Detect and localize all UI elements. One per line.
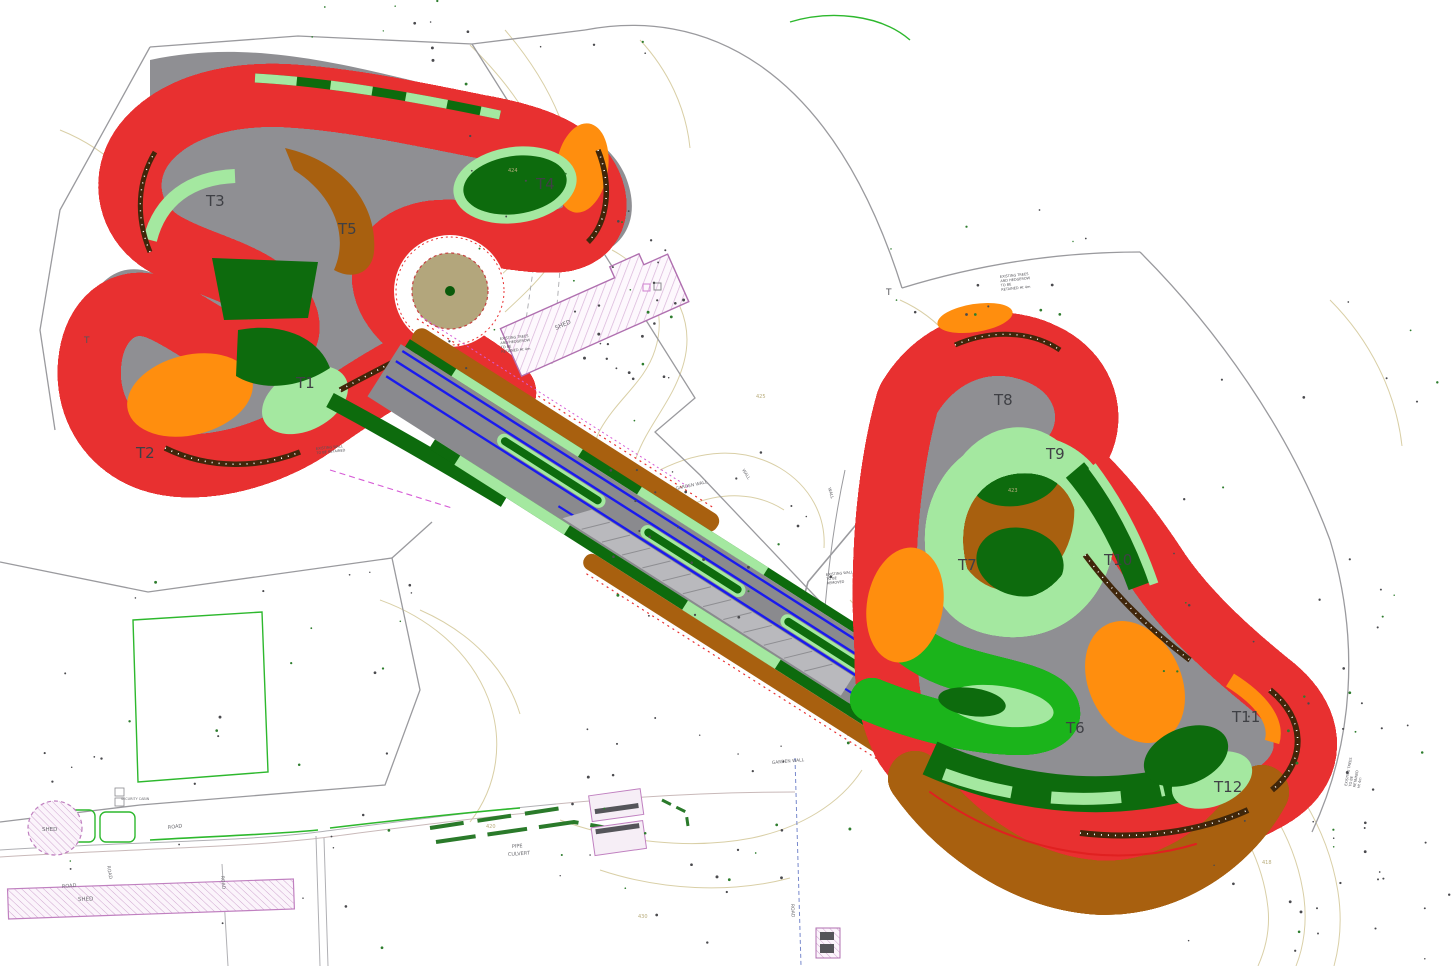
- turn-label-T8: T8: [993, 391, 1013, 409]
- survey-note-5: REMOVED: [827, 580, 845, 586]
- right-circuit-cluster: [858, 298, 1306, 888]
- wall-label-2: WALL: [827, 487, 835, 500]
- contour-elevation-label: 420: [486, 824, 496, 830]
- security-cabin: [115, 788, 124, 796]
- contour-elevation-label: 425: [756, 394, 766, 400]
- turn-label-T9: T9: [1045, 445, 1065, 463]
- long-shed: [8, 879, 295, 919]
- pipe-culvert-label-2: CULVERT: [508, 850, 531, 858]
- road-lines: [0, 792, 795, 966]
- track-plan-drawing: T1T2T3T4T5T6T7T8T9T10T11T12TTSHEDSHEDSHE…: [0, 0, 1452, 966]
- turn-label-T12: T12: [1213, 778, 1242, 796]
- turn-label-T10: T10: [1103, 551, 1132, 569]
- turn-label-T2: T2: [135, 444, 155, 462]
- road-label-3: ROAD: [105, 865, 113, 880]
- survey-note-4: Ht 4m: [1357, 777, 1363, 789]
- road-label-5: ROAD: [789, 904, 796, 918]
- turn-label-T4: T4: [535, 175, 555, 193]
- garden-wall-label-1: GARDEN WALL: [675, 479, 708, 492]
- turn-label-T7: T7: [957, 556, 977, 574]
- small-structure: [816, 928, 840, 958]
- road-label-1: ROAD: [62, 883, 77, 890]
- pipe-culvert-label: PIPE: [512, 843, 523, 850]
- security-cabin-label: SECURITY CABIN: [121, 797, 150, 801]
- shed-circle-label: SHED: [42, 827, 57, 833]
- contour-elevation-label: 418: [1262, 860, 1272, 866]
- contour-elevation-label: 423: [1008, 488, 1018, 494]
- turn-label-T3: T3: [205, 192, 225, 210]
- contour-elevation-label: 424: [508, 168, 518, 174]
- tan-circle-feature: [394, 235, 506, 347]
- track-plan-page: T1T2T3T4T5T6T7T8T9T10T11T12TTSHEDSHEDSHE…: [0, 0, 1452, 966]
- wall-label-1: WALL: [741, 468, 752, 481]
- road-label-2: ROAD: [168, 823, 183, 831]
- turn-label-T11: T11: [1231, 708, 1260, 726]
- turn-label-T1: T1: [295, 374, 315, 392]
- tree-mark: T: [83, 336, 90, 346]
- contour-elevation-label: 430: [638, 914, 648, 920]
- shed-rect-label: SHED: [78, 896, 94, 903]
- tree-mark: T: [885, 288, 892, 298]
- turn-label-T5: T5: [337, 220, 357, 238]
- turn-label-T6: T6: [1065, 719, 1085, 737]
- pit-sheds: [587, 789, 649, 856]
- median-islands: [494, 431, 879, 684]
- garden-wall-label-2: GARDEN WALL: [772, 757, 805, 766]
